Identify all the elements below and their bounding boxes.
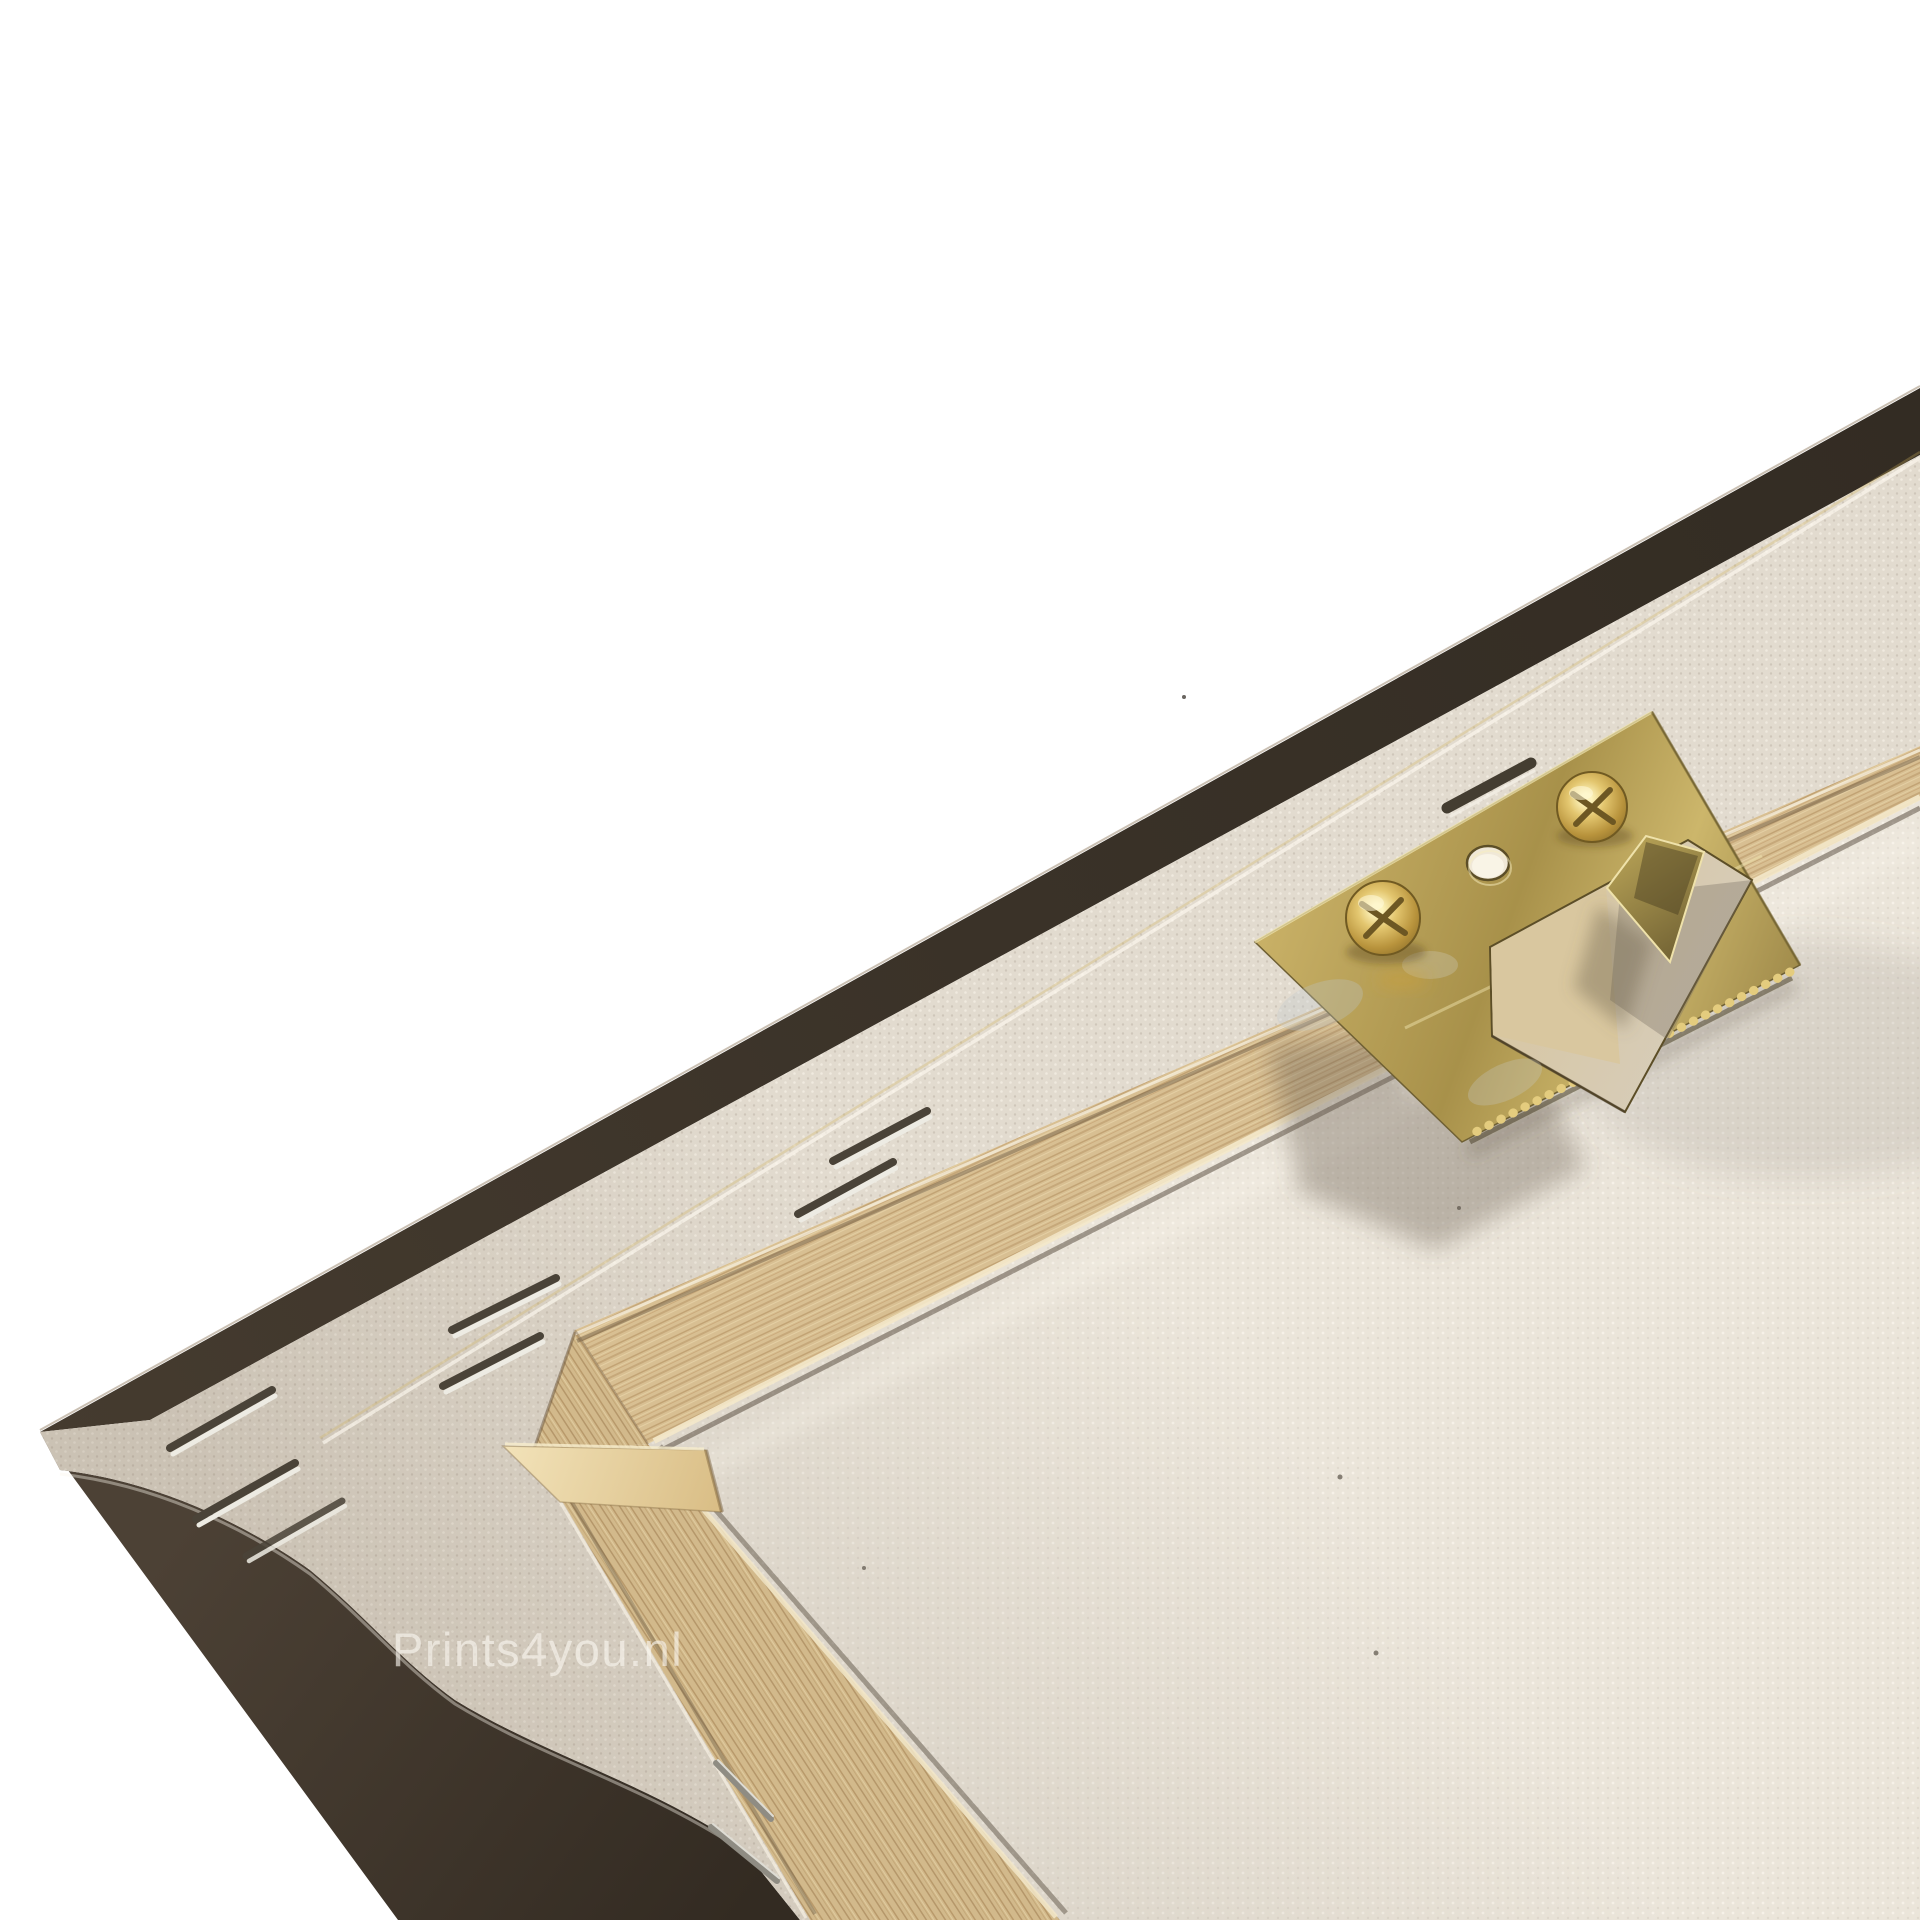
canvas-frame-back-photo: Prints4you.nl bbox=[0, 0, 1920, 1920]
screw-hole-empty bbox=[1467, 846, 1511, 885]
stretched-canvas-frame bbox=[40, 386, 1920, 1920]
photo-scene: Prints4you.nl bbox=[0, 0, 1920, 1920]
watermark: Prints4you.nl bbox=[392, 1623, 683, 1676]
